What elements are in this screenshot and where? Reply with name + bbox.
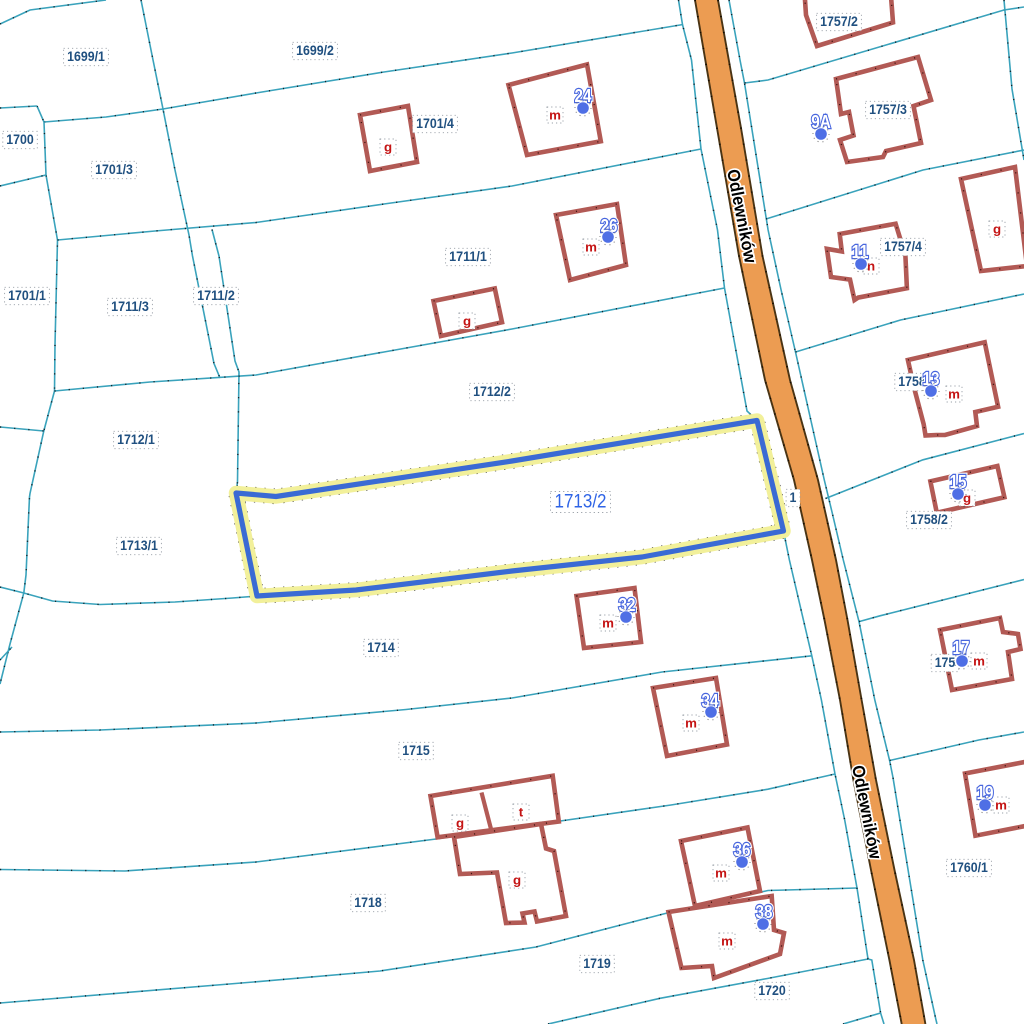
svg-text:1715: 1715 <box>402 743 430 759</box>
svg-text:t: t <box>519 805 524 820</box>
svg-text:1701/3: 1701/3 <box>95 162 133 178</box>
svg-text:m: m <box>948 387 960 402</box>
svg-text:g: g <box>513 873 521 888</box>
svg-text:m: m <box>685 716 697 731</box>
svg-text:g: g <box>463 314 471 329</box>
svg-text:1711/3: 1711/3 <box>111 299 149 315</box>
svg-text:1699/1: 1699/1 <box>67 49 105 65</box>
svg-text:m: m <box>973 654 985 669</box>
svg-text:m: m <box>585 240 597 255</box>
svg-text:1712/2: 1712/2 <box>473 384 511 400</box>
svg-text:1758/2: 1758/2 <box>910 512 948 528</box>
svg-text:g: g <box>456 816 464 831</box>
svg-text:1713/2: 1713/2 <box>555 492 607 513</box>
svg-text:1760/1: 1760/1 <box>950 860 988 876</box>
svg-text:1712/1: 1712/1 <box>117 432 155 448</box>
svg-text:m: m <box>721 934 733 949</box>
svg-text:m: m <box>602 616 614 631</box>
svg-text:1718: 1718 <box>354 895 382 911</box>
svg-text:1719: 1719 <box>583 956 611 972</box>
svg-text:m: m <box>549 108 561 123</box>
svg-text:1757/3: 1757/3 <box>869 102 907 118</box>
svg-text:1757/4: 1757/4 <box>884 239 922 255</box>
svg-text:m: m <box>995 798 1007 813</box>
svg-text:m: m <box>715 866 727 881</box>
svg-text:1714: 1714 <box>367 640 395 656</box>
svg-text:1711/2: 1711/2 <box>197 288 235 304</box>
svg-text:1713/1: 1713/1 <box>120 538 158 554</box>
svg-text:1701/4: 1701/4 <box>416 116 454 132</box>
svg-text:1720: 1720 <box>758 983 786 999</box>
svg-text:1701/1: 1701/1 <box>8 288 46 304</box>
svg-text:1: 1 <box>790 490 797 506</box>
svg-text:1699/2: 1699/2 <box>296 43 334 59</box>
svg-text:1711/1: 1711/1 <box>449 249 487 265</box>
svg-text:1757/2: 1757/2 <box>820 14 858 30</box>
svg-text:g: g <box>384 140 392 155</box>
svg-text:g: g <box>993 222 1001 237</box>
svg-text:1700: 1700 <box>6 132 34 148</box>
